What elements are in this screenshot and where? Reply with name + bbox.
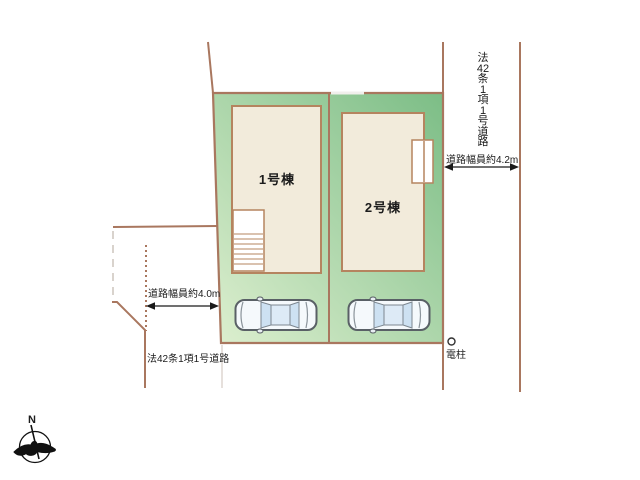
right-road-width-label: 道路幅員約4.2m	[446, 151, 518, 166]
compass-n-label: N	[28, 414, 36, 426]
utility-pole-label: 電柱	[446, 346, 466, 361]
left-road-name: 法42条1項1号道路	[147, 350, 229, 365]
building-2-label: 2号棟	[338, 197, 428, 216]
building-1-label: 1号棟	[232, 169, 322, 188]
width-arrow-4-0m	[146, 302, 219, 310]
left-road-top-line	[113, 226, 218, 227]
building-2	[342, 113, 424, 271]
site-plan-canvas: 1号棟 2号棟 法 42 条 1 項 1 号 道 路 道路幅員約4.2m 道路幅…	[0, 0, 640, 480]
car-2-icon	[349, 297, 430, 333]
site-plan-drawing	[0, 0, 640, 480]
building-2-balcony	[412, 140, 433, 183]
left-road-corner-line	[112, 302, 145, 388]
compass-icon	[14, 425, 55, 463]
car-1-icon	[236, 297, 317, 333]
building-1-stairs	[233, 210, 264, 271]
left-road-width-label: 道路幅員約4.0m	[148, 285, 220, 300]
right-road-name: 法 42 条 1 項 1 号 道 路	[471, 53, 495, 148]
top-left-boundary-line	[208, 42, 213, 93]
utility-pole-icon	[448, 338, 455, 345]
